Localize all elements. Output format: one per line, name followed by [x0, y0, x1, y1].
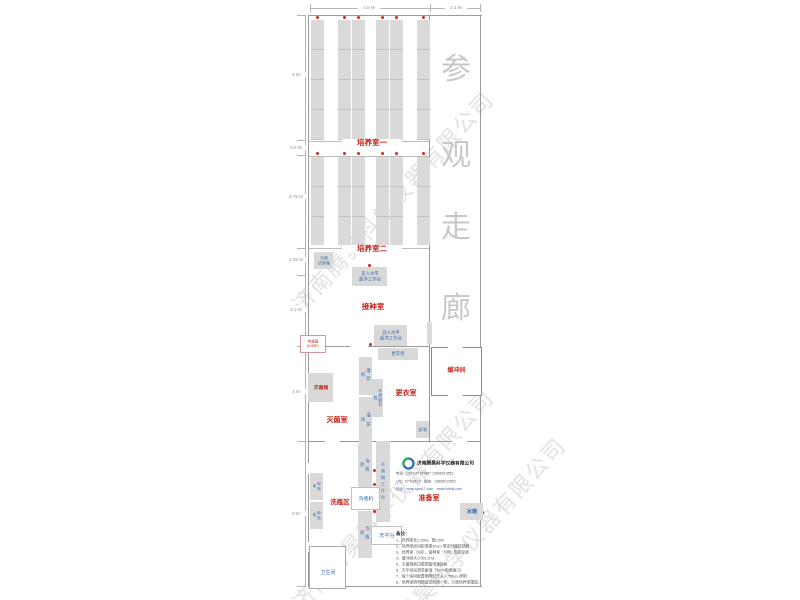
- dim-tick: [297, 140, 306, 141]
- dim-tick: [310, 4, 311, 12]
- room-label-sterilization: 灭菌室: [317, 417, 357, 425]
- door-gap: [325, 440, 340, 443]
- notes-header: 备注：: [396, 530, 506, 537]
- culture-rack: [376, 157, 389, 245]
- room-label-buffer: 缓冲间: [447, 368, 465, 375]
- floor-plan-canvas: 济南腾昊科学仪器有限公司 济南腾昊科学仪器有限公司 济南腾昊科学仪器有限公司 4…: [0, 0, 800, 600]
- culture-rack: [311, 157, 324, 245]
- power-point-dot: [343, 16, 346, 19]
- door-gap: [350, 345, 368, 348]
- dim-label-0-6m: 0.6 M: [285, 145, 307, 150]
- drying-rack-box: 晾瓶架: [310, 502, 323, 529]
- company-contact-block: 电话：0531-87799867 15866013552 QQ：57437467…: [396, 470, 506, 493]
- corridor-title-char: 观: [440, 130, 472, 174]
- door-gap: [452, 440, 467, 443]
- dim-tick: [430, 4, 431, 12]
- door-gap: [448, 346, 463, 349]
- corridor-title-char: 走: [440, 202, 472, 246]
- light-incubator-box: 光照培养箱: [314, 252, 333, 269]
- dim-label-6m: 6 M: [285, 511, 307, 516]
- toilet-box: 卫生间: [309, 546, 346, 589]
- dim-tick: [480, 4, 481, 12]
- power-point-dot: [357, 16, 360, 19]
- buffer-room-box: 缓冲间: [431, 347, 482, 396]
- dim-label-4m: 4 M: [285, 389, 307, 394]
- company-logo: [402, 457, 415, 470]
- power-point-dot: [357, 152, 360, 155]
- wall-inoculation-south: [309, 346, 430, 347]
- culture-rack: [417, 20, 430, 140]
- bottle-washer-box: 洗瓶机: [351, 487, 380, 510]
- power-point-dot: [395, 16, 398, 19]
- drying-rack-box: 晾瓶架: [310, 473, 323, 500]
- power-point-dot: [422, 16, 425, 19]
- soak-pool-box: 泡瓶池: [358, 445, 372, 488]
- clean-bench-box: 双人水平超净工作台: [352, 267, 387, 286]
- company-name-wrap: 济南腾昊科学仪器有限公司: [417, 459, 517, 466]
- power-point-dot: [422, 152, 425, 155]
- company-web: 网址：www.sywt17.com www.cnthkj.com: [396, 486, 506, 494]
- autoclave-box: 灭菌锅: [308, 373, 333, 402]
- dim-tick: [297, 155, 306, 156]
- company-qq: QQ：57437467 微信：15866013552: [396, 478, 506, 486]
- culture-rack: [338, 20, 351, 140]
- dim-tick: [297, 586, 306, 587]
- dim-tick: [297, 248, 306, 249]
- wall-left: [308, 15, 309, 587]
- door-leaf: [427, 322, 432, 344]
- room-label-changing: 更衣室: [386, 390, 426, 398]
- dim-line-left: [305, 15, 306, 586]
- wardrobe-box: 更衣柜: [378, 348, 418, 360]
- room-label-culture2: 培养室二: [342, 245, 402, 253]
- culture-rack: [338, 157, 351, 245]
- culture-rack: [390, 157, 403, 245]
- company-name: 济南腾昊科学仪器有限公司: [417, 459, 517, 466]
- dim-label-5m: 5 M: [285, 72, 307, 77]
- dim-label-3-75m: 3.75 M: [285, 194, 307, 199]
- dim-tick: [297, 15, 306, 16]
- culture-rack: [352, 20, 365, 140]
- power-point-dot: [395, 152, 398, 155]
- culture-rack: [352, 157, 365, 245]
- filling-machine-box: 灌装机: [359, 357, 372, 395]
- shoe-rack-box: 鞋架: [416, 421, 429, 438]
- dim-tick: [297, 441, 306, 442]
- soak-pool-box: 泡瓶池: [358, 511, 372, 558]
- power-point-dot: [381, 16, 384, 19]
- culture-rack: [417, 157, 430, 245]
- culture-rack: [376, 20, 389, 140]
- pass-window-box: 传递窗(0.6M²): [300, 335, 326, 353]
- room-label-culture1: 培养室一: [342, 139, 402, 147]
- corridor-title-char: 参: [440, 44, 472, 88]
- power-point-dot: [343, 152, 346, 155]
- wall-right: [480, 15, 481, 587]
- power-point-dot: [316, 152, 319, 155]
- steel-bench-box: 不锈钢长凳: [372, 379, 383, 417]
- dim-label-width-main: 4.8 M: [358, 5, 380, 10]
- note-item: 8、培养室照明预留控制线一侧，方便培养架摆放。: [396, 580, 506, 586]
- room-label-inoculation: 接种室: [343, 303, 403, 311]
- power-point-dot: [369, 343, 372, 346]
- dim-label-1-05m: 1.05 M: [285, 257, 307, 262]
- power-point-dot: [316, 16, 319, 19]
- culture-rack: [390, 20, 403, 140]
- room-label-prep: 准备室: [411, 495, 447, 503]
- power-point-dot: [381, 152, 384, 155]
- notes-block: 备注： 1、培养架长1.25M，宽0.5M 2、培养架层间距离需30cm 带定时…: [396, 530, 506, 586]
- dim-tick: [297, 275, 306, 276]
- door-gap: [448, 394, 463, 397]
- clean-bench-box: 双人水平超净工作台: [374, 325, 407, 346]
- company-phone: 电话：0531-87799867 15866013552: [396, 470, 506, 478]
- culture-rack: [311, 20, 324, 140]
- dim-label-width-corridor: 2.1 M: [445, 5, 467, 10]
- filling-table-box: 灌装台: [359, 397, 372, 446]
- room-divider-line: [309, 156, 429, 157]
- corridor-title-char: 廊: [440, 283, 472, 327]
- fridge-box: 冰箱: [460, 503, 483, 520]
- dim-label-3-2m: 3.2 M: [285, 307, 307, 312]
